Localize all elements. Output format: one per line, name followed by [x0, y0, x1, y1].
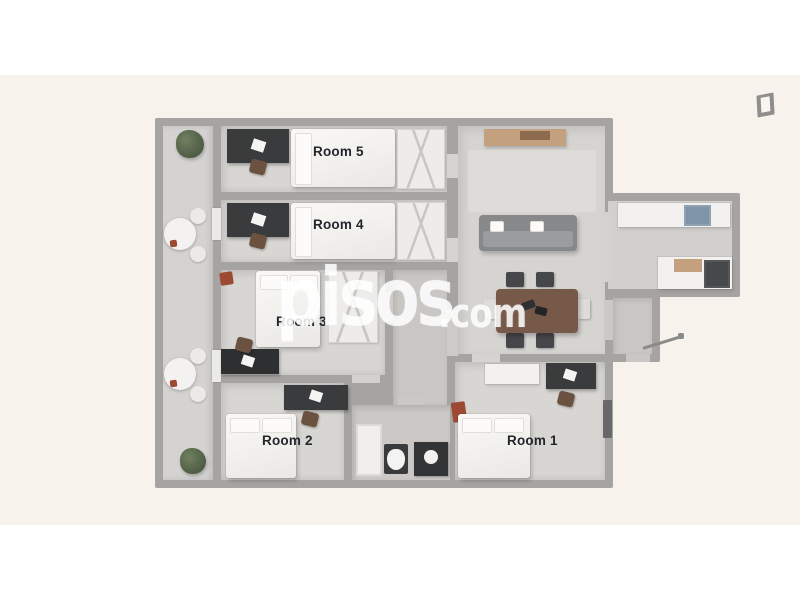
kitchen-opening [601, 212, 612, 282]
bed-pillow [462, 418, 492, 433]
bed-pillow [295, 207, 312, 257]
balcony-door-leaf [212, 208, 221, 240]
bed-pillow [230, 418, 260, 433]
dining-chair [578, 299, 590, 319]
balcony-plant [176, 130, 204, 158]
sofa-pillow [530, 221, 544, 232]
sofa-pillow [490, 221, 504, 232]
dining-chair [506, 272, 524, 287]
floor-plan-image: Room 5 Room 4 Room 3 Room 2 Room 1 pisos… [0, 0, 800, 600]
bed-pillow [262, 418, 292, 433]
kitchen-sink [684, 205, 711, 226]
sofa-seat [483, 231, 573, 247]
cafe-chair [190, 348, 206, 364]
room-5-wardrobe [397, 129, 445, 189]
dining-chair [536, 333, 554, 348]
room-2-door-opening [352, 375, 380, 383]
flower-pot [170, 240, 178, 248]
cafe-chair [190, 208, 206, 224]
sideboard-item [520, 131, 550, 140]
room-4-label: Room 4 [313, 217, 364, 232]
entry-opening [604, 300, 613, 340]
cafe-table [164, 358, 196, 390]
living-rug [468, 150, 596, 212]
balcony-door-leaf [212, 350, 221, 382]
room-1-label: Room 1 [507, 433, 558, 448]
room-1-door-opening [472, 354, 500, 362]
toilet-seat [387, 449, 405, 470]
balcony-floor [163, 126, 213, 480]
bathroom-sink [424, 450, 438, 464]
bed-pillow [295, 133, 312, 185]
watermark-tld: .com [438, 294, 526, 334]
front-door-opening [626, 354, 650, 362]
watermark-brand: pisos [276, 258, 452, 338]
bathroom-door-opening [398, 397, 424, 405]
room-5-door-opening [447, 154, 458, 178]
cutting-board [674, 259, 702, 272]
open-door-icon-panel [761, 96, 771, 113]
kitchen-counter [618, 203, 730, 227]
shower [356, 424, 382, 476]
window [603, 400, 612, 438]
cafe-chair [190, 386, 206, 402]
dining-chair [536, 272, 554, 287]
cafe-table [164, 218, 196, 250]
stove [704, 260, 730, 288]
balcony-plant [180, 448, 206, 474]
cafe-chair [190, 246, 206, 262]
room-5-label: Room 5 [313, 144, 364, 159]
bed-pillow [494, 418, 524, 433]
flower-pot [170, 380, 178, 388]
room-3-stool [219, 271, 234, 286]
room-2-label: Room 2 [262, 433, 313, 448]
room-1-wardrobe [485, 364, 539, 384]
front-door-handle [678, 333, 684, 339]
